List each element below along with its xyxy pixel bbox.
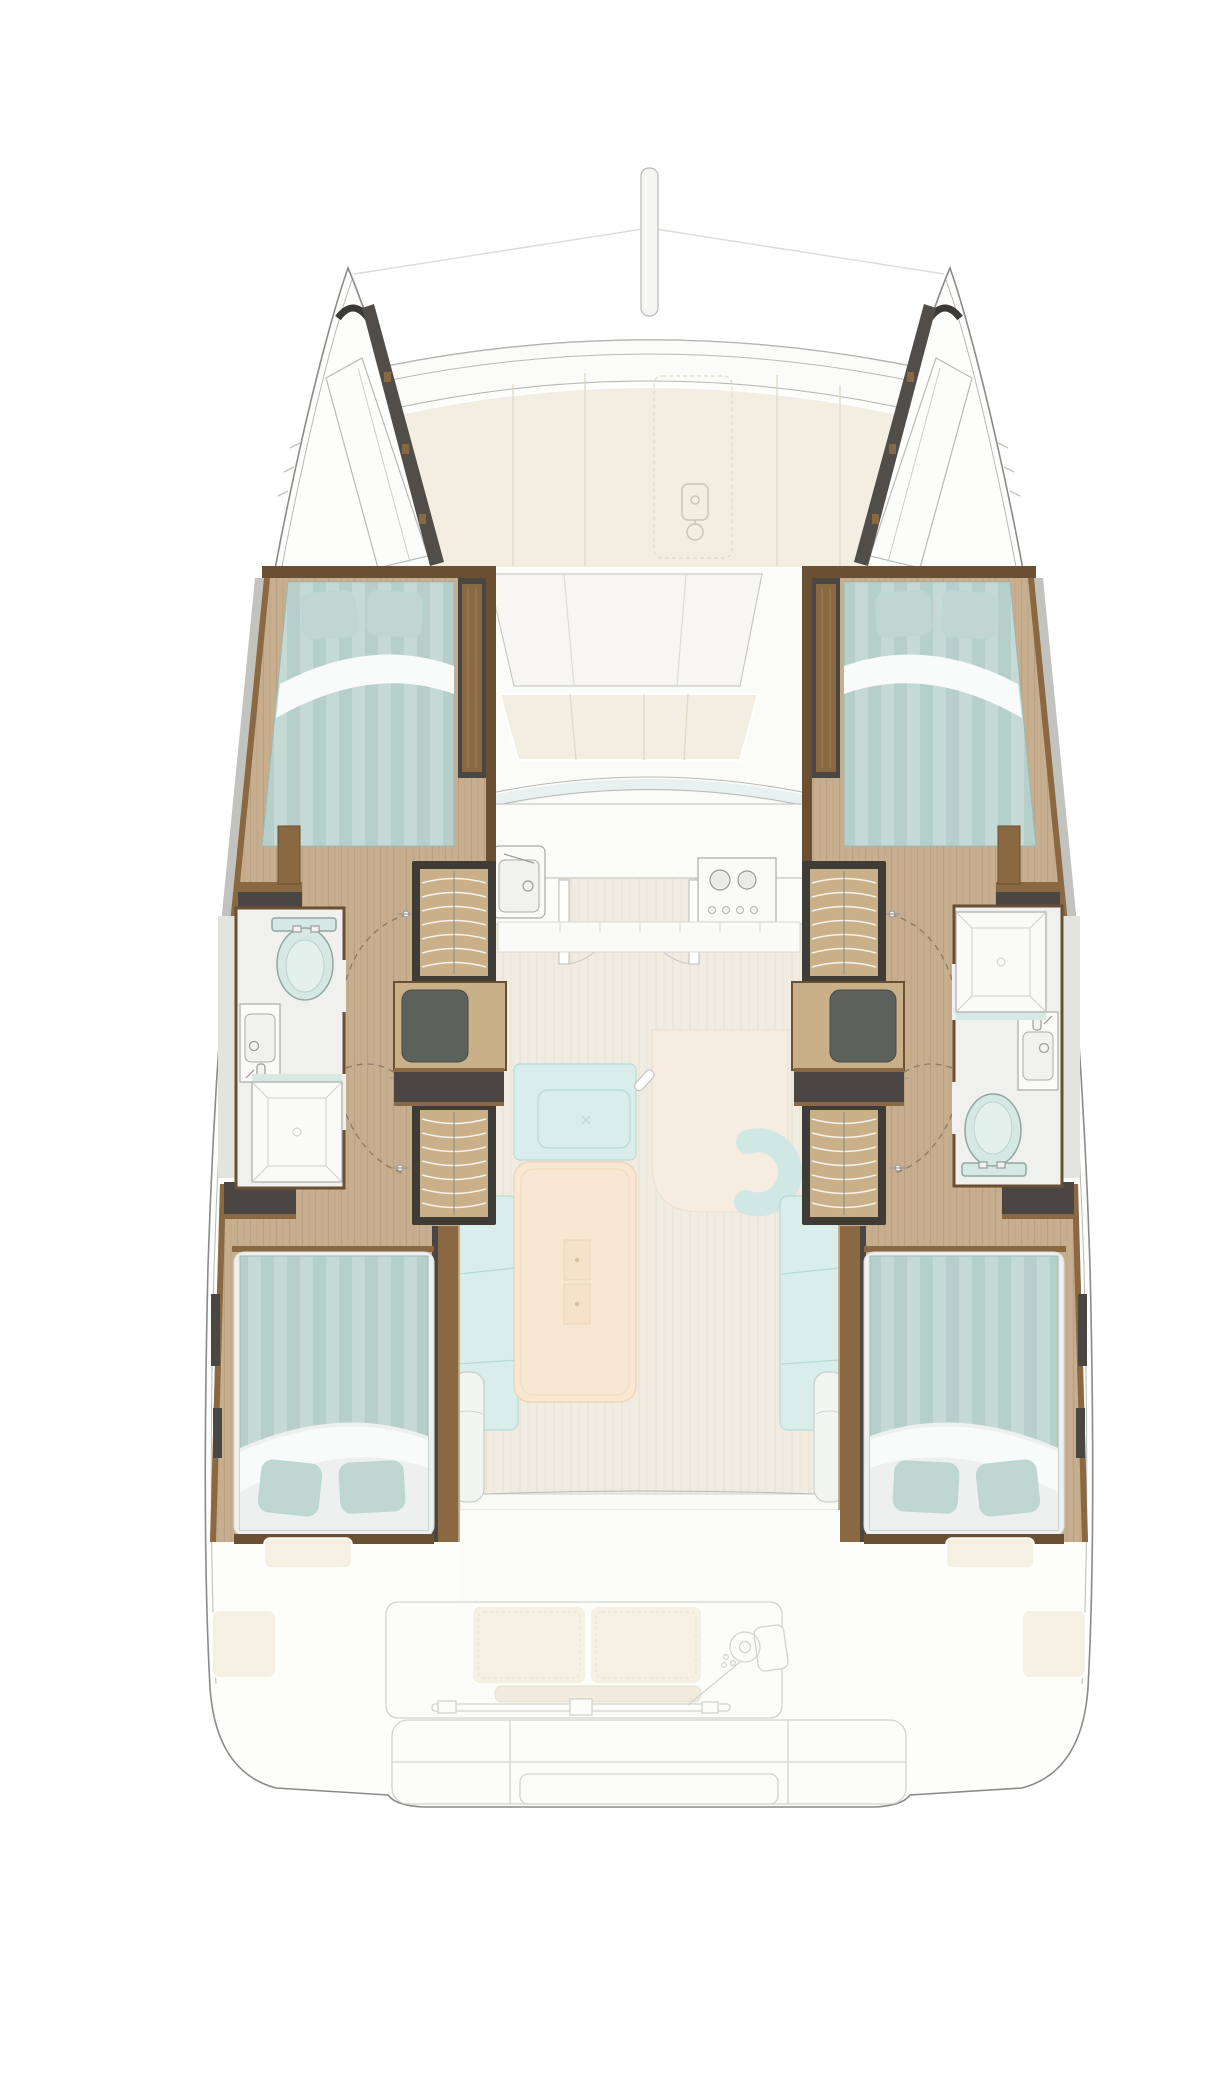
rigging-line-starboard xyxy=(649,228,944,274)
companionway-steps-aft xyxy=(412,1102,496,1225)
forward-cockpit-backrest xyxy=(488,574,762,686)
aft-shelf-port xyxy=(264,1538,352,1568)
companionway-starboard xyxy=(792,861,956,1228)
aft-shelf-starboard xyxy=(946,1538,1034,1568)
saloon-table xyxy=(514,1162,636,1402)
foredeck-sunpad xyxy=(400,373,898,568)
saloon-aft-wall xyxy=(460,1491,840,1510)
wardrobe xyxy=(462,584,482,772)
aft-bench-backrest xyxy=(495,1686,701,1702)
forward-cockpit-cushions xyxy=(500,694,758,760)
pillow xyxy=(366,591,423,638)
aft-bench-cushion xyxy=(472,1606,586,1684)
pillow xyxy=(257,1459,322,1517)
head-starboard xyxy=(952,906,1080,1186)
pillow xyxy=(339,1460,406,1513)
rigging-line-port xyxy=(354,228,649,274)
mast xyxy=(641,168,658,316)
boat-floor-plan-svg xyxy=(40,16,1219,2064)
shower xyxy=(252,1074,342,1182)
side-seat-starboard xyxy=(1022,1610,1086,1678)
catamaran-floor-plan: Catamaran sailing yacht interior floor p… xyxy=(40,16,1219,2064)
hull-window xyxy=(211,1294,220,1366)
side-seat-port xyxy=(212,1610,276,1678)
aft-bench-cushion xyxy=(590,1606,702,1684)
bed-forward xyxy=(262,582,454,846)
vanity-sink xyxy=(240,1004,280,1082)
cabin-starboard-aft xyxy=(838,1182,1088,1544)
galley-sink xyxy=(493,846,545,918)
head-port xyxy=(218,908,346,1188)
galley-shelf xyxy=(498,922,800,952)
cabin-port-aft xyxy=(210,1182,460,1544)
pillow xyxy=(300,590,357,640)
galley-island xyxy=(652,1030,788,1212)
companionway-steps-forward xyxy=(412,861,496,984)
galley-stove xyxy=(698,858,776,922)
hull-window xyxy=(213,1408,222,1458)
transom-platform xyxy=(392,1720,906,1804)
companionway-port xyxy=(342,861,506,1228)
forward-cockpit xyxy=(434,568,864,806)
